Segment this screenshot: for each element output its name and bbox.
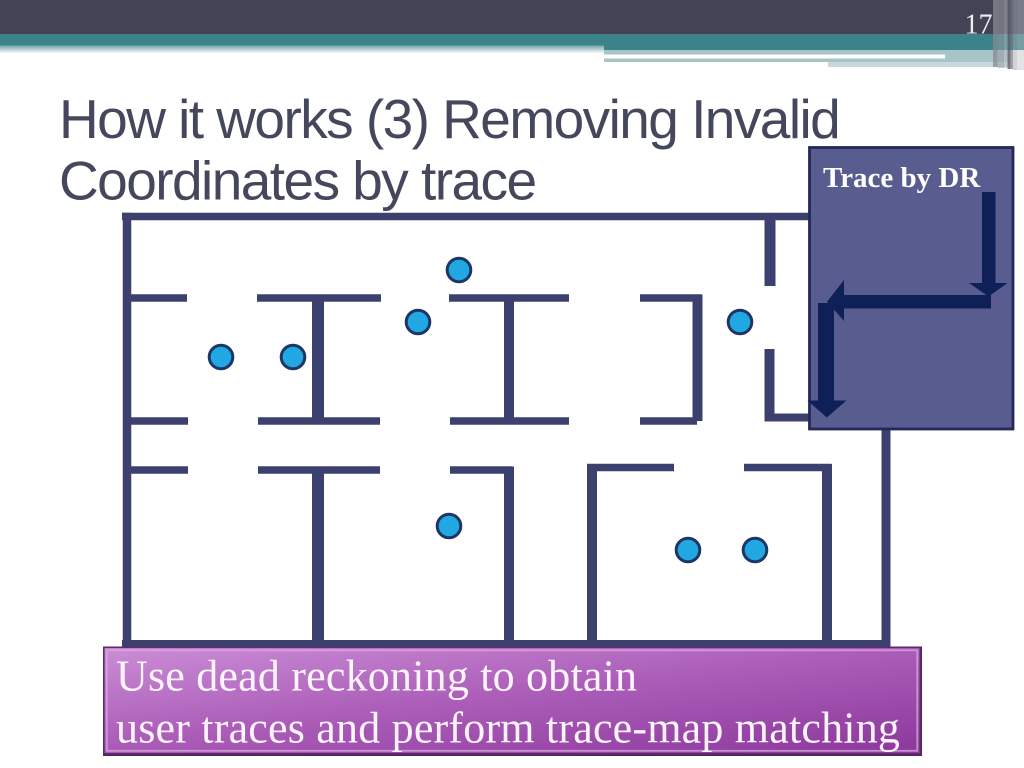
svg-text:user traces and perform trace-: user traces and perform trace-map matchi… bbox=[116, 704, 900, 753]
svg-text:Use dead reckoning to obtain: Use dead reckoning to obtain bbox=[116, 652, 637, 701]
svg-text:How it works (3) Removing Inva: How it works (3) Removing Invalid bbox=[59, 88, 839, 150]
svg-text:17: 17 bbox=[965, 10, 993, 41]
svg-text:Coordinates by trace: Coordinates by trace bbox=[59, 150, 536, 212]
svg-text:Trace by DR: Trace by DR bbox=[823, 162, 981, 194]
